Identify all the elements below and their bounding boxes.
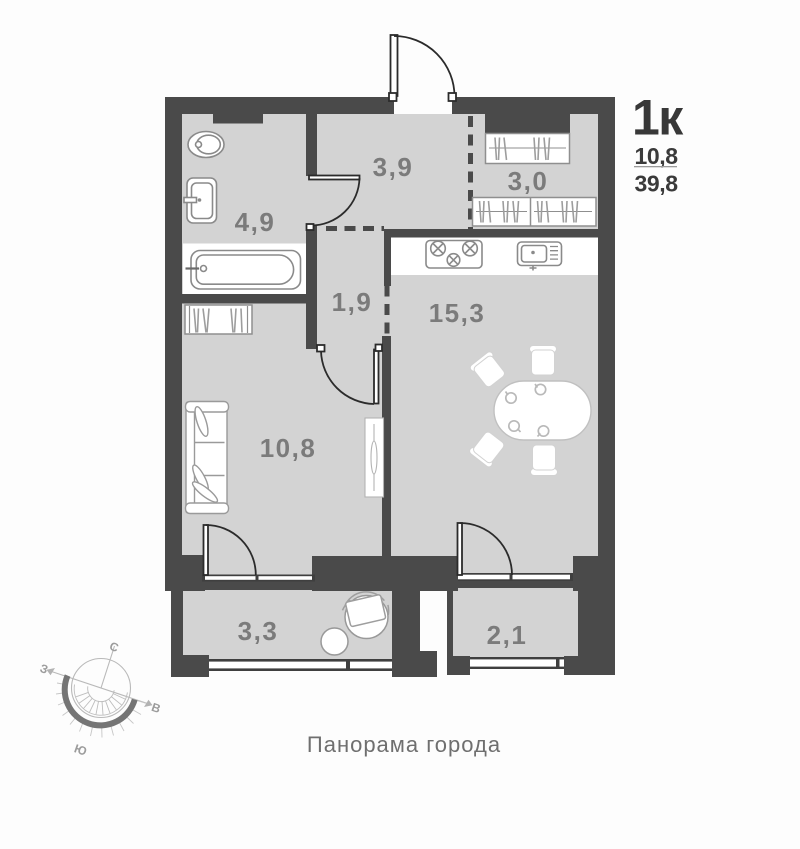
svg-text:15,3: 15,3 — [429, 298, 486, 328]
svg-text:10,8: 10,8 — [635, 143, 679, 169]
svg-text:4,9: 4,9 — [235, 207, 276, 237]
svg-text:3,9: 3,9 — [373, 152, 414, 182]
svg-text:З: З — [38, 661, 50, 677]
svg-text:Панорама города: Панорама города — [307, 732, 501, 757]
svg-text:1к: 1к — [632, 90, 684, 146]
svg-text:1,9: 1,9 — [332, 287, 373, 317]
svg-text:2,1: 2,1 — [487, 620, 528, 650]
svg-text:3,0: 3,0 — [508, 166, 549, 196]
svg-text:В: В — [150, 700, 163, 716]
svg-text:Ю: Ю — [72, 741, 88, 758]
svg-text:10,8: 10,8 — [260, 433, 317, 463]
svg-text:39,8: 39,8 — [635, 171, 679, 197]
svg-text:3,3: 3,3 — [238, 616, 279, 646]
svg-text:С: С — [108, 639, 121, 655]
